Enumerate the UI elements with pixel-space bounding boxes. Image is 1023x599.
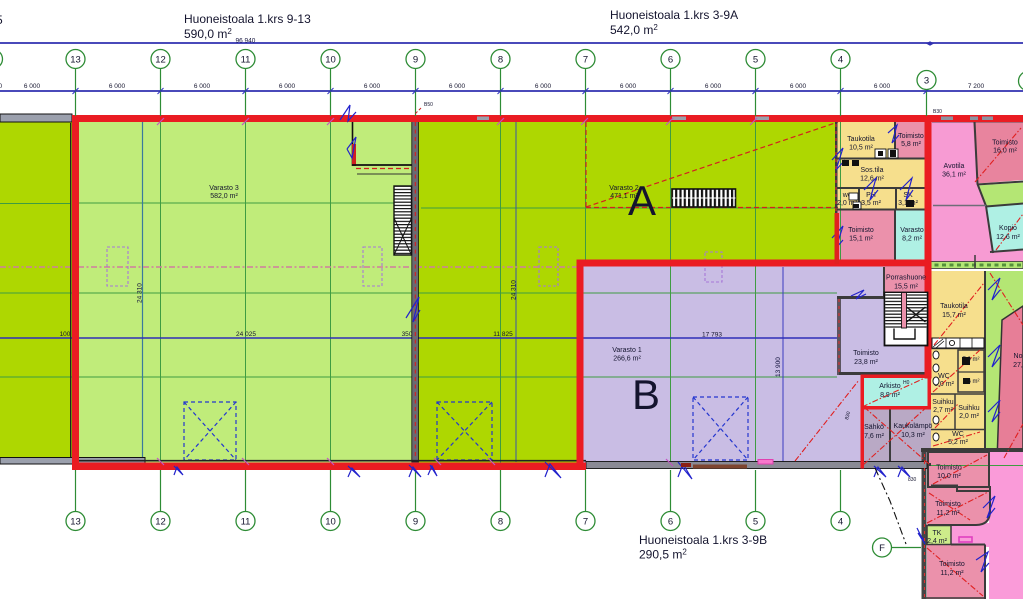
svg-text:16,0 m²: 16,0 m² xyxy=(993,148,1017,155)
svg-text:Sähkö: Sähkö xyxy=(864,424,884,431)
svg-text:Huoneistoala 1.krs 9-13: Huoneistoala 1.krs 9-13 xyxy=(184,12,311,26)
svg-text:36,1 m²: 36,1 m² xyxy=(942,172,966,179)
svg-text:Porrashuone: Porrashuone xyxy=(886,275,926,282)
svg-text:6 000: 6 000 xyxy=(364,83,381,90)
svg-text:Suihku: Suihku xyxy=(932,399,954,406)
svg-text:8,2 m²: 8,2 m² xyxy=(902,236,923,243)
svg-text:Toimisto: Toimisto xyxy=(935,501,961,508)
svg-text:582,0 m²: 582,0 m² xyxy=(210,193,238,200)
svg-text:2,0 m²: 2,0 m² xyxy=(959,413,980,420)
svg-text:Kopio: Kopio xyxy=(999,225,1017,232)
svg-text:12,6 m²: 12,6 m² xyxy=(996,234,1020,241)
svg-text:6 000: 6 000 xyxy=(535,83,552,90)
svg-text:6 000: 6 000 xyxy=(279,83,296,90)
svg-text:Varasto 3: Varasto 3 xyxy=(209,185,239,192)
svg-text:8,9 m²: 8,9 m² xyxy=(880,392,901,399)
svg-text:266,6 m²: 266,6 m² xyxy=(613,356,641,363)
svg-text:Toimisto: Toimisto xyxy=(939,561,965,568)
svg-text:7,6 m²: 7,6 m² xyxy=(864,433,885,440)
svg-text:B: B xyxy=(632,371,660,418)
svg-text:24 310: 24 310 xyxy=(137,283,144,303)
svg-text:15,7 m²: 15,7 m² xyxy=(942,312,966,319)
svg-text:13: 13 xyxy=(70,517,81,528)
svg-text:Toimisto: Toimisto xyxy=(848,227,874,234)
svg-text:6 000: 6 000 xyxy=(109,83,126,90)
svg-text:10,3 m²: 10,3 m² xyxy=(901,432,925,439)
svg-text:6 000: 6 000 xyxy=(705,83,722,90)
svg-text:8: 8 xyxy=(498,55,503,66)
svg-text:290,5 m2: 290,5 m2 xyxy=(639,548,687,562)
svg-text:15,1 m²: 15,1 m² xyxy=(849,236,873,243)
svg-text:6 000: 6 000 xyxy=(194,83,211,90)
svg-text:Sos.tila: Sos.tila xyxy=(861,167,884,174)
svg-text:B50: B50 xyxy=(424,102,433,108)
svg-text:5: 5 xyxy=(753,517,758,528)
svg-text:WC: WC xyxy=(952,431,964,438)
svg-text:Taukotila: Taukotila xyxy=(847,136,875,143)
svg-text:WC: WC xyxy=(938,373,950,380)
svg-text:Huoneistoala 1.krs 3-9B: Huoneistoala 1.krs 3-9B xyxy=(639,533,767,547)
svg-text:Toimisto: Toimisto xyxy=(992,140,1018,147)
svg-text:13: 13 xyxy=(70,55,81,66)
svg-text:Suihku: Suihku xyxy=(958,405,980,412)
svg-text:542,0 m2: 542,0 m2 xyxy=(610,23,658,37)
svg-text:11: 11 xyxy=(241,517,251,528)
svg-text:3: 3 xyxy=(924,76,929,87)
svg-text:24 310: 24 310 xyxy=(511,280,518,300)
svg-text:TK: TK xyxy=(933,530,942,537)
svg-text:5,2 m²: 5,2 m² xyxy=(948,439,969,446)
svg-text:27,: 27, xyxy=(1013,362,1023,369)
svg-text:350: 350 xyxy=(402,331,413,338)
svg-text:11: 11 xyxy=(241,55,251,66)
svg-text:10,0 m²: 10,0 m² xyxy=(937,473,961,480)
svg-text:7 200: 7 200 xyxy=(968,83,985,90)
svg-text:9: 9 xyxy=(413,55,418,66)
svg-text:6 000: 6 000 xyxy=(0,83,3,90)
svg-text:2,7 m²: 2,7 m² xyxy=(933,407,954,414)
svg-text:Avotila: Avotila xyxy=(944,163,965,170)
svg-text:4: 4 xyxy=(838,55,843,66)
svg-text:6: 6 xyxy=(668,55,673,66)
svg-text:10: 10 xyxy=(325,55,336,66)
svg-text:Toimisto: Toimisto xyxy=(853,350,879,357)
svg-text:10: 10 xyxy=(325,517,336,528)
svg-text:4: 4 xyxy=(838,517,843,528)
svg-text:6 000: 6 000 xyxy=(24,83,41,90)
svg-text:9: 9 xyxy=(413,517,418,528)
svg-text:B30: B30 xyxy=(933,109,942,115)
svg-text:2,4 m²: 2,4 m² xyxy=(927,538,948,545)
svg-text:23,8 m²: 23,8 m² xyxy=(854,359,878,366)
svg-text:6 000: 6 000 xyxy=(790,83,807,90)
svg-text:3,5 m²: 3,5 m² xyxy=(861,200,882,207)
svg-text:5: 5 xyxy=(0,13,3,27)
svg-text:Arkisto: Arkisto xyxy=(879,383,901,390)
svg-text:11 825: 11 825 xyxy=(493,331,513,338)
svg-text:Varasto 2: Varasto 2 xyxy=(609,185,639,192)
svg-text:13 900: 13 900 xyxy=(775,357,782,377)
svg-text:5: 5 xyxy=(753,55,758,66)
svg-text:No: No xyxy=(1014,353,1023,360)
svg-text:11,2 m²: 11,2 m² xyxy=(940,570,964,577)
svg-text:Kaukolämpö: Kaukolämpö xyxy=(894,423,933,430)
svg-text:6 000: 6 000 xyxy=(874,83,891,90)
svg-text:Taukotila: Taukotila xyxy=(940,303,968,310)
svg-text:Huoneistoala 1.krs 3-9A: Huoneistoala 1.krs 3-9A xyxy=(610,8,738,22)
svg-text:8: 8 xyxy=(498,517,503,528)
svg-text:6: 6 xyxy=(668,517,673,528)
svg-text:7: 7 xyxy=(583,55,588,66)
svg-text:12: 12 xyxy=(155,55,166,66)
svg-text:7: 7 xyxy=(583,517,588,528)
svg-text:15,5 m²: 15,5 m² xyxy=(894,284,918,291)
svg-text:10,5 m²: 10,5 m² xyxy=(849,145,873,152)
svg-text:F: F xyxy=(879,543,885,554)
svg-text:Varasto: Varasto xyxy=(900,227,924,234)
svg-text:471,1 m²: 471,1 m² xyxy=(610,193,638,200)
svg-text:24 025: 24 025 xyxy=(236,331,256,338)
svg-text:H0: H0 xyxy=(903,380,910,386)
svg-text:5,8 m²: 5,8 m² xyxy=(901,141,922,148)
svg-text:6 000: 6 000 xyxy=(620,83,637,90)
svg-text:96 940: 96 940 xyxy=(236,38,256,45)
svg-text:17 793: 17 793 xyxy=(702,332,722,339)
svg-text:12: 12 xyxy=(155,517,166,528)
svg-text:11,2 m²: 11,2 m² xyxy=(936,510,960,517)
svg-text:6 000: 6 000 xyxy=(449,83,466,90)
svg-text:Varasto 1: Varasto 1 xyxy=(612,347,642,354)
svg-text:590,0 m2: 590,0 m2 xyxy=(184,27,232,41)
svg-text:Toimisto: Toimisto xyxy=(936,465,962,472)
svg-text:100: 100 xyxy=(60,331,71,338)
svg-text:830: 830 xyxy=(908,477,917,483)
svg-text:Toimisto: Toimisto xyxy=(898,133,924,140)
